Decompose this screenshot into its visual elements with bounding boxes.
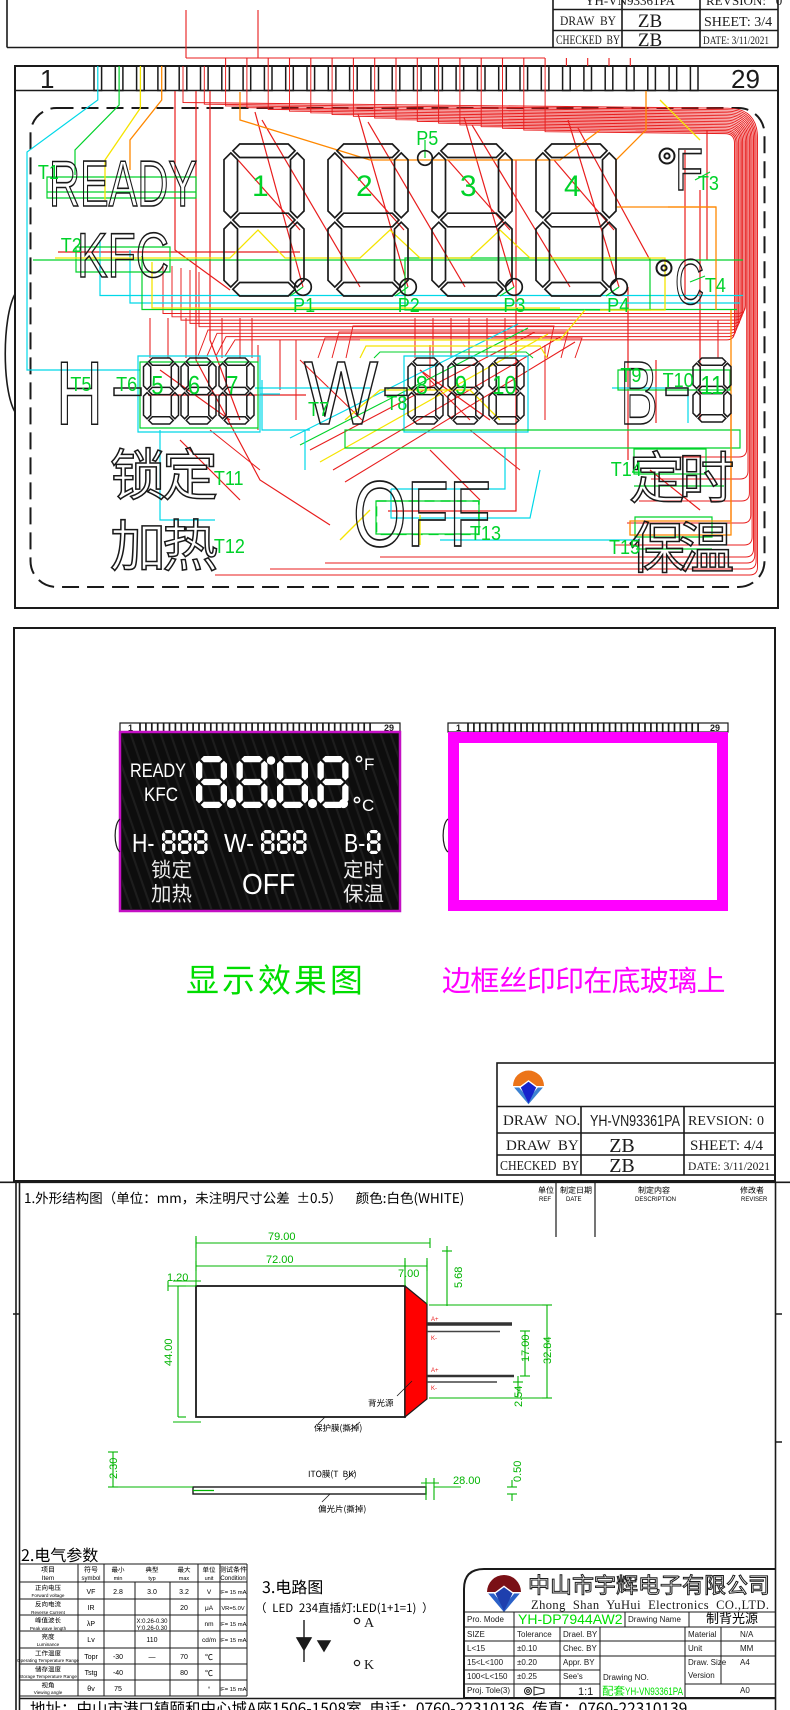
svg-text:T10: T10 bbox=[663, 370, 694, 392]
svg-text:15<L<100: 15<L<100 bbox=[467, 1658, 504, 1667]
svg-text:2.30: 2.30 bbox=[108, 1458, 120, 1479]
svg-text:0.50: 0.50 bbox=[512, 1461, 524, 1482]
svg-text:YH-VN93361PA: YH-VN93361PA bbox=[585, 0, 675, 8]
svg-text:Peak wave length: Peak wave length bbox=[30, 1626, 67, 1631]
svg-text:μA: μA bbox=[205, 1605, 214, 1612]
svg-text:W: W bbox=[304, 344, 378, 444]
svg-text:A0: A0 bbox=[740, 1686, 750, 1695]
svg-text:See's: See's bbox=[563, 1672, 583, 1681]
svg-text:T3: T3 bbox=[698, 173, 719, 195]
svg-text:θv: θv bbox=[87, 1686, 95, 1693]
svg-text:Item: Item bbox=[42, 1575, 55, 1582]
svg-text:72.00: 72.00 bbox=[266, 1254, 294, 1266]
svg-text:Operating Temperature Range: Operating Temperature Range bbox=[17, 1658, 79, 1663]
svg-text:REF: REF bbox=[539, 1197, 551, 1203]
svg-text:T12: T12 bbox=[214, 536, 245, 558]
svg-text:T5: T5 bbox=[70, 374, 91, 396]
svg-text:W-: W- bbox=[224, 829, 254, 858]
svg-text:Proj. Tole(3): Proj. Tole(3) bbox=[467, 1686, 510, 1695]
svg-text:±0.10: ±0.10 bbox=[517, 1644, 538, 1653]
svg-text:IR: IR bbox=[88, 1605, 95, 1612]
svg-text:T2: T2 bbox=[61, 235, 82, 257]
svg-text:P3: P3 bbox=[503, 295, 525, 317]
svg-text:REVSION:: REVSION: bbox=[688, 1114, 753, 1129]
svg-text:H-: H- bbox=[132, 829, 154, 859]
svg-text:IF= 15 mA: IF= 15 mA bbox=[220, 1638, 247, 1644]
svg-text:V: V bbox=[207, 1589, 212, 1596]
svg-text:Version: Version bbox=[688, 1671, 715, 1680]
svg-text:X:0.26-0.30: X:0.26-0.30 bbox=[136, 1619, 168, 1625]
svg-text:1: 1 bbox=[40, 64, 54, 94]
svg-text:SHEET: 3/4: SHEET: 3/4 bbox=[704, 15, 772, 30]
svg-text:10: 10 bbox=[492, 371, 517, 400]
svg-text:SHEET: 4/4: SHEET: 4/4 bbox=[690, 1138, 764, 1154]
svg-text:Reverse Current: Reverse Current bbox=[31, 1610, 65, 1615]
svg-text:DESCRIPTION: DESCRIPTION bbox=[635, 1197, 676, 1203]
svg-text:3.0: 3.0 bbox=[147, 1589, 157, 1596]
svg-text:29: 29 bbox=[710, 723, 720, 733]
svg-text:KFC: KFC bbox=[77, 221, 169, 291]
svg-text:MM: MM bbox=[740, 1644, 754, 1653]
svg-text:IF= 15 mA: IF= 15 mA bbox=[220, 1687, 247, 1693]
svg-text:1:1: 1:1 bbox=[578, 1686, 593, 1698]
svg-text:Drael. BY: Drael. BY bbox=[563, 1630, 598, 1639]
svg-text:2.54: 2.54 bbox=[513, 1386, 525, 1407]
svg-text:Condition: Condition bbox=[220, 1576, 245, 1582]
svg-text:2.8: 2.8 bbox=[113, 1589, 123, 1596]
svg-text:17.00: 17.00 bbox=[520, 1334, 532, 1362]
svg-text:ZB: ZB bbox=[638, 11, 662, 32]
svg-text:5.68: 5.68 bbox=[453, 1267, 465, 1288]
svg-text:DRAW BY: DRAW BY bbox=[506, 1138, 579, 1154]
svg-text:Lv: Lv bbox=[87, 1637, 95, 1644]
svg-text:C: C bbox=[362, 796, 374, 815]
svg-text:REVSION: 0: REVSION: 0 bbox=[706, 0, 782, 8]
svg-text:100<L<150: 100<L<150 bbox=[467, 1672, 508, 1681]
svg-text:DRAW NO.: DRAW NO. bbox=[503, 1113, 580, 1129]
svg-text:Storage Temperature Range: Storage Temperature Range bbox=[19, 1674, 77, 1679]
svg-text:Appr. BY: Appr. BY bbox=[563, 1658, 595, 1667]
svg-text:T6: T6 bbox=[116, 374, 137, 396]
svg-text:T11: T11 bbox=[214, 468, 244, 490]
svg-text:ZB: ZB bbox=[609, 1155, 635, 1177]
svg-text:±0.25: ±0.25 bbox=[517, 1672, 538, 1681]
svg-text:7: 7 bbox=[226, 371, 238, 400]
svg-text:-30: -30 bbox=[113, 1654, 123, 1661]
svg-text:B: B bbox=[620, 344, 658, 444]
svg-text:λP: λP bbox=[87, 1621, 96, 1628]
svg-text:VF: VF bbox=[87, 1589, 96, 1596]
svg-text:YH-VN93361PA: YH-VN93361PA bbox=[590, 1113, 680, 1130]
svg-text:Pro. Mode: Pro. Mode bbox=[467, 1615, 504, 1624]
svg-text:±0.20: ±0.20 bbox=[517, 1658, 538, 1667]
svg-text:Tolerance: Tolerance bbox=[517, 1630, 552, 1639]
svg-text:28.00: 28.00 bbox=[453, 1475, 481, 1487]
svg-text:OFF: OFF bbox=[242, 868, 295, 900]
svg-text:T4: T4 bbox=[705, 275, 726, 297]
svg-text:Y:0.26-0.30: Y:0.26-0.30 bbox=[137, 1626, 168, 1632]
svg-text:1: 1 bbox=[252, 170, 269, 203]
svg-text:Zhong Shan YuHui Electronic: Zhong Shan YuHui Electronics CO.,LTD. bbox=[531, 1598, 769, 1612]
svg-text:T9: T9 bbox=[620, 365, 641, 387]
svg-text:Tstg: Tstg bbox=[85, 1670, 98, 1677]
svg-text:7.00: 7.00 bbox=[398, 1268, 419, 1280]
svg-text:A+: A+ bbox=[431, 1368, 439, 1374]
svg-text:3.2: 3.2 bbox=[179, 1589, 189, 1596]
svg-text:32.84: 32.84 bbox=[542, 1336, 554, 1364]
svg-text:nm: nm bbox=[204, 1621, 213, 1628]
svg-text:3: 3 bbox=[460, 170, 477, 203]
svg-text:DATE: 3/11/2021: DATE: 3/11/2021 bbox=[688, 1159, 770, 1173]
svg-text:44.00: 44.00 bbox=[163, 1338, 175, 1366]
svg-text:-40: -40 bbox=[113, 1670, 123, 1677]
svg-text:cd/m: cd/m bbox=[202, 1637, 216, 1644]
svg-text:L<15: L<15 bbox=[467, 1644, 486, 1653]
svg-text:Drawing Name: Drawing Name bbox=[628, 1615, 681, 1624]
svg-text:Chec. BY: Chec. BY bbox=[563, 1644, 597, 1653]
svg-text:Topr: Topr bbox=[84, 1654, 98, 1661]
svg-text:4: 4 bbox=[564, 170, 581, 203]
svg-text:F: F bbox=[364, 755, 374, 774]
svg-text:2: 2 bbox=[356, 170, 373, 203]
svg-text:IF= 15 mA: IF= 15 mA bbox=[220, 1622, 247, 1628]
svg-text:Drawing NO.: Drawing NO. bbox=[603, 1673, 649, 1682]
svg-text:typ: typ bbox=[148, 1576, 155, 1582]
svg-text:SIZE: SIZE bbox=[467, 1630, 485, 1639]
svg-text:max: max bbox=[179, 1576, 190, 1582]
svg-text:Draw. Size: Draw. Size bbox=[688, 1658, 727, 1667]
svg-text:75: 75 bbox=[114, 1686, 122, 1693]
svg-text:VR=5.0V: VR=5.0V bbox=[221, 1606, 244, 1612]
svg-text:T14: T14 bbox=[611, 459, 642, 481]
svg-text:DATE: 3/11/2021: DATE: 3/11/2021 bbox=[703, 35, 769, 47]
svg-text:min: min bbox=[114, 1576, 123, 1582]
svg-text:6: 6 bbox=[188, 371, 200, 400]
svg-text:K-: K- bbox=[431, 1386, 437, 1392]
svg-text:Luminance: Luminance bbox=[37, 1642, 60, 1647]
svg-text:79.00: 79.00 bbox=[268, 1231, 296, 1243]
svg-text:T7: T7 bbox=[308, 399, 329, 421]
svg-text:—: — bbox=[149, 1654, 156, 1661]
svg-text:T1: T1 bbox=[38, 162, 59, 184]
svg-text:20: 20 bbox=[180, 1605, 188, 1612]
svg-text:5: 5 bbox=[151, 371, 163, 400]
svg-text:80: 80 bbox=[180, 1670, 188, 1677]
svg-text:K: K bbox=[364, 1658, 374, 1673]
svg-text:YH-VN93361PA: YH-VN93361PA bbox=[625, 1686, 683, 1698]
svg-text:P4: P4 bbox=[607, 295, 629, 317]
svg-text:°: ° bbox=[208, 1685, 211, 1693]
svg-text:K-: K- bbox=[431, 1336, 437, 1342]
svg-text:1.20: 1.20 bbox=[167, 1272, 188, 1284]
svg-text:110: 110 bbox=[146, 1637, 157, 1644]
svg-text:CHECKED BY: CHECKED BY bbox=[556, 32, 620, 47]
svg-text:REVISER: REVISER bbox=[741, 1197, 768, 1203]
svg-text:P2: P2 bbox=[398, 295, 420, 317]
svg-text:Viewing angle: Viewing angle bbox=[34, 1690, 63, 1695]
svg-text:Unit: Unit bbox=[688, 1644, 703, 1653]
svg-text:P5: P5 bbox=[416, 128, 438, 150]
svg-text:ZB: ZB bbox=[638, 30, 662, 51]
svg-text:OFF: OFF bbox=[353, 462, 491, 566]
svg-text:1: 1 bbox=[456, 723, 461, 733]
svg-text:unit: unit bbox=[205, 1576, 214, 1582]
svg-text:Material: Material bbox=[688, 1630, 717, 1639]
svg-text:ZB: ZB bbox=[609, 1135, 635, 1157]
svg-text:A4: A4 bbox=[740, 1658, 750, 1667]
svg-text:READY: READY bbox=[130, 760, 186, 782]
svg-text:IF= 15 mA: IF= 15 mA bbox=[220, 1590, 247, 1596]
svg-text:A: A bbox=[364, 1616, 375, 1631]
svg-text:C: C bbox=[675, 246, 704, 318]
svg-text:N/A: N/A bbox=[740, 1630, 754, 1639]
svg-text:T8: T8 bbox=[386, 393, 407, 415]
svg-text:DATE: DATE bbox=[566, 1197, 582, 1203]
svg-text:READY: READY bbox=[49, 147, 197, 220]
svg-text:T13: T13 bbox=[470, 523, 501, 545]
svg-text:YH-DP7944AW2: YH-DP7944AW2 bbox=[518, 1611, 623, 1627]
svg-text:A+: A+ bbox=[431, 1317, 439, 1323]
svg-text:KFC: KFC bbox=[144, 784, 178, 806]
svg-text:70: 70 bbox=[180, 1654, 188, 1661]
svg-text:0: 0 bbox=[757, 1114, 764, 1129]
svg-text:symbol: symbol bbox=[81, 1576, 100, 1582]
svg-text:B-: B- bbox=[344, 829, 365, 859]
svg-text:T15: T15 bbox=[609, 537, 640, 559]
svg-text:P1: P1 bbox=[293, 295, 315, 317]
svg-text:CHECKED BY: CHECKED BY bbox=[500, 1159, 579, 1174]
svg-text:8: 8 bbox=[416, 371, 428, 400]
svg-text:11: 11 bbox=[700, 371, 723, 400]
svg-text:29: 29 bbox=[731, 64, 760, 94]
svg-text:DRAW BY: DRAW BY bbox=[560, 13, 617, 28]
svg-text:9: 9 bbox=[455, 371, 467, 400]
svg-text:Forward voltage: Forward voltage bbox=[32, 1593, 65, 1598]
